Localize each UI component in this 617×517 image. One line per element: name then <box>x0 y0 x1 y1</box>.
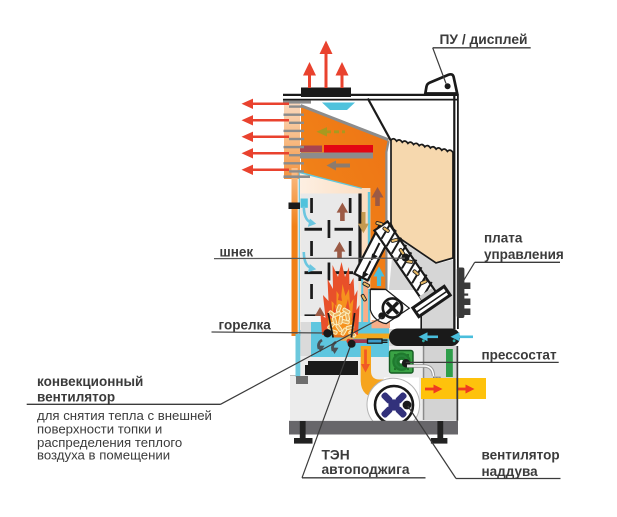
svg-text:плата: плата <box>484 231 523 246</box>
svg-text:управления: управления <box>484 247 564 262</box>
svg-text:автоподжига: автоподжига <box>322 462 410 477</box>
svg-text:ТЭН: ТЭН <box>322 448 350 463</box>
svg-text:горелка: горелка <box>219 318 272 333</box>
svg-text:воздуха в помещении: воздуха в помещении <box>37 448 170 463</box>
svg-text:ПУ / дисплей: ПУ / дисплей <box>440 32 528 47</box>
svg-text:прессостат: прессостат <box>482 348 557 363</box>
svg-text:конвекционный: конвекционный <box>37 374 143 389</box>
svg-text:вентилятор: вентилятор <box>37 390 115 405</box>
svg-text:вентилятор: вентилятор <box>482 448 560 463</box>
svg-text:шнек: шнек <box>220 245 254 260</box>
svg-text:наддува: наддува <box>482 464 539 479</box>
